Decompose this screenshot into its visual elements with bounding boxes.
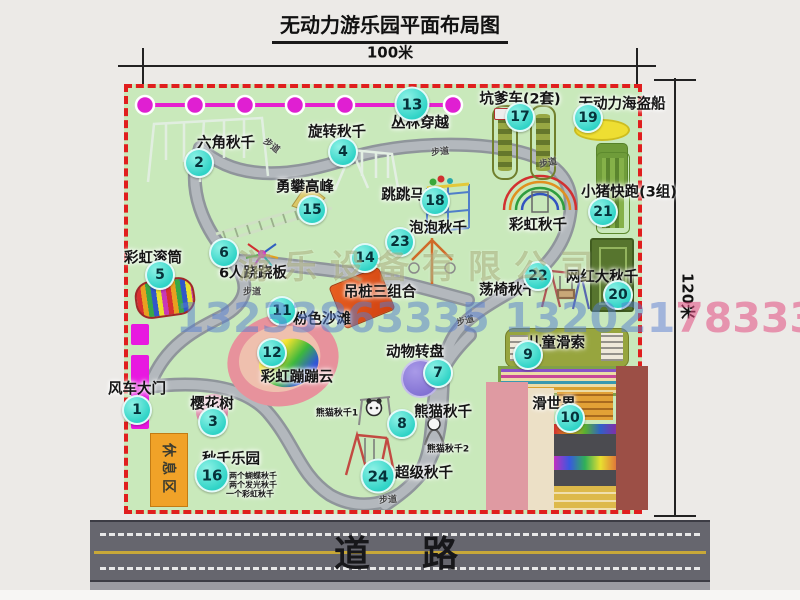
dim-tick-right (636, 48, 638, 84)
attraction-15-badge: 15 (297, 195, 327, 225)
panda-swing-2-label: 熊猫秋千2 (427, 442, 469, 455)
attraction-23-label: 泡泡秋千 (409, 217, 467, 238)
slide-pink-column-icon (486, 382, 528, 510)
attraction-3-badge: 3 (198, 407, 228, 437)
attraction-8-label: 熊猫秋千 (414, 401, 472, 422)
dim-width-label: 100米 (367, 42, 413, 63)
attraction-5-badge: 5 (145, 260, 175, 290)
road: 道 路 (90, 520, 710, 582)
swing-park-note: 一个彩虹秋千 (226, 489, 274, 500)
watermark-company: 游乐设备有限公司 (238, 240, 658, 288)
attraction-21-badge: 21 (588, 197, 618, 227)
panda-swing-1-label: 熊猫秋千1 (316, 406, 358, 419)
page: 无动力游乐园平面布局图 100米 120米 (0, 0, 800, 600)
attraction-7-badge: 7 (423, 358, 453, 388)
attraction-18-label: 跳跳马 (381, 184, 425, 205)
attraction-13-badge: 13 (395, 87, 430, 122)
attraction-19-badge: 19 (573, 103, 603, 133)
windmill-gate-icon (131, 324, 149, 345)
attraction-8-badge: 8 (387, 409, 417, 439)
attraction-10-badge: 10 (555, 403, 585, 433)
attraction-18-badge: 18 (420, 186, 450, 216)
attraction-15-label: 勇攀高峰 (276, 176, 334, 197)
rest-area-label: 休息区 (159, 443, 179, 497)
watermark-phone-tail: 78333 (675, 294, 800, 342)
rainbow-swing-label: 彩虹秋千 (509, 214, 567, 235)
slide-yellow-band-icon (554, 486, 616, 510)
attraction-2-badge: 2 (184, 148, 214, 178)
attraction-4-badge: 4 (328, 137, 358, 167)
watermark-phone-main: 13233863335 132021 (176, 294, 675, 342)
slide-world-icon (486, 366, 648, 510)
road-label: 道 路 (334, 525, 466, 577)
rest-area-box: 休息区 (150, 433, 188, 507)
dim-tick-top (654, 79, 696, 81)
page-title: 无动力游乐园平面布局图 (272, 9, 508, 44)
road-shoulder (90, 582, 710, 590)
dim-line-horizontal (118, 65, 656, 67)
dim-tick-bottom (654, 515, 696, 517)
attraction-24-label: 超级秋千 (395, 462, 453, 483)
dim-tick-left (142, 48, 144, 84)
page-bottom-strip (0, 590, 800, 600)
attraction-12-badge: 12 (257, 338, 287, 368)
slide-maroon-column-icon (616, 366, 648, 510)
watermark-phone: 13233863335 13202178333 (176, 294, 800, 342)
attraction-16-badge: 16 (195, 458, 230, 493)
slide-rainbow-band-icon (554, 456, 616, 470)
attraction-9-badge: 9 (513, 340, 543, 370)
attraction-24-badge: 24 (361, 459, 396, 494)
attraction-17-badge: 17 (505, 102, 535, 132)
slide-dark-band-icon (554, 434, 616, 456)
attraction-1-badge: 1 (122, 395, 152, 425)
trail-label: 步道 (430, 144, 449, 159)
attraction-6-badge: 6 (209, 238, 239, 268)
attraction-12-label: 彩虹蹦蹦云 (261, 366, 334, 387)
trail-label: 步道 (379, 492, 398, 506)
slide-dark-band-icon (554, 470, 616, 486)
